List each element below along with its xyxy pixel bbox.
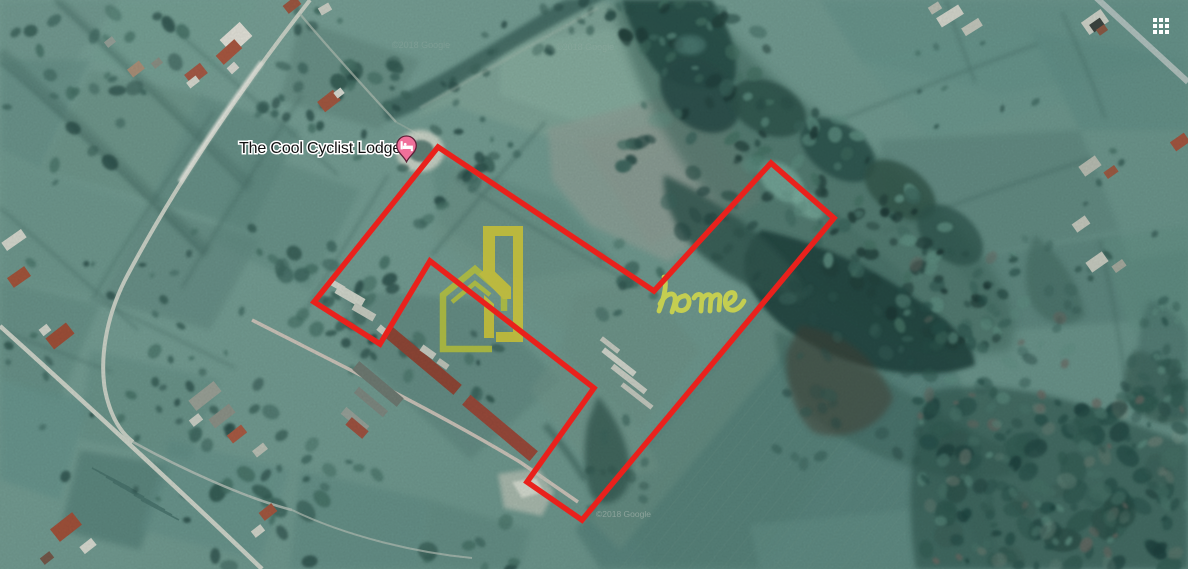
svg-text:©2018 Google: ©2018 Google xyxy=(392,40,450,50)
svg-text:©2018 Google: ©2018 Google xyxy=(596,509,651,519)
svg-text:©2018 Google: ©2018 Google xyxy=(556,42,614,52)
svg-text:The Cool Cyclist Lodge: The Cool Cyclist Lodge xyxy=(239,140,401,157)
